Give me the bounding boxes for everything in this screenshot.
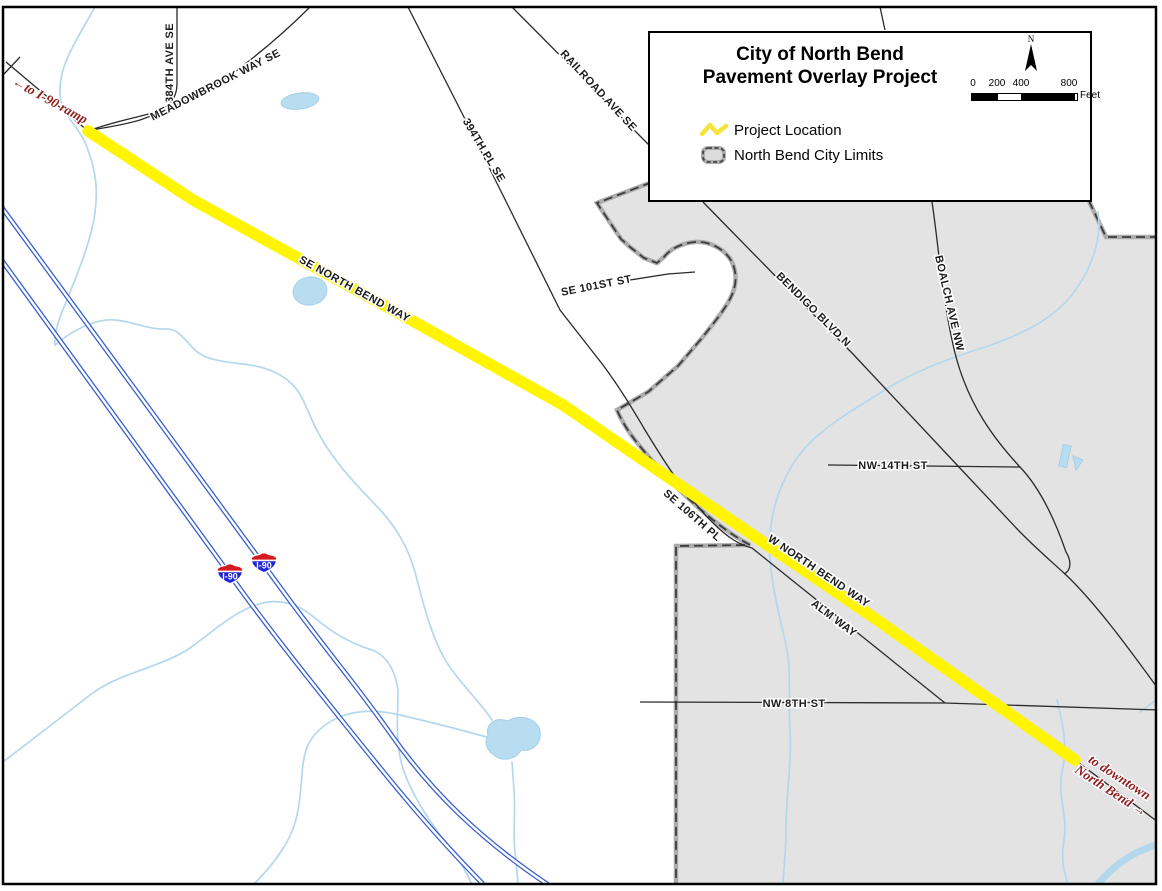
scale-tick-0: 0 [970,78,976,89]
legend-item-city-limits: North Bend City Limits [734,147,883,164]
map-title-line1: City of North Bend [690,43,950,66]
scale-tick-400: 400 [1013,78,1030,89]
scale-bar-segment [972,94,998,100]
street-label-nw-8th-st: NW 8TH ST [763,698,826,710]
north-label: N [1016,34,1046,44]
north-arrow-icon [1022,44,1040,72]
legend-item-project-location: Project Location [734,122,842,139]
shield-label: I-90 [256,561,272,571]
project-location-symbol-icon [700,121,730,139]
scale-tick-800: 800 [1061,78,1078,89]
scale-bar-segment [1021,94,1075,100]
city-limits-symbol-icon [700,146,730,164]
street-label-nw-14th-st: NW 14TH ST [858,460,927,472]
scale-bar-segment [998,94,1021,100]
scale-unit-label: Feet [1080,90,1100,101]
scale-tick-200: 200 [989,78,1006,89]
shield-label: I-90 [222,572,238,582]
north-arrow: N [1016,34,1046,77]
street-label-384th-ave-se: 384TH AVE SE [164,23,176,103]
scale-bar-labels: 0 200 400 800 [650,78,1090,90]
map-canvas: I-90 I-90 384TH AVE SE MEADOWBROOK WAY S… [0,0,1162,891]
legend-box: City of North Bend Pavement Overlay Proj… [648,31,1092,202]
scale-bar [971,93,1078,101]
